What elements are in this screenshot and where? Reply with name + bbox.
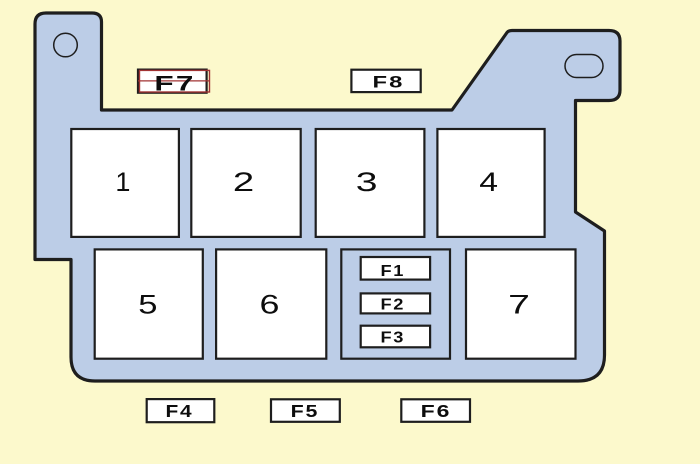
svg-text:F6: F6 <box>421 402 452 422</box>
svg-text:3: 3 <box>356 168 378 198</box>
svg-text:F8: F8 <box>373 73 405 92</box>
svg-text:2: 2 <box>233 167 254 197</box>
svg-text:F3: F3 <box>380 327 405 346</box>
svg-text:F4: F4 <box>165 402 193 422</box>
svg-text:F1: F1 <box>380 261 405 280</box>
svg-text:F2: F2 <box>380 294 405 313</box>
svg-text:7: 7 <box>508 290 530 320</box>
svg-text:F7: F7 <box>154 71 195 95</box>
svg-text:6: 6 <box>260 289 280 320</box>
svg-text:F5: F5 <box>291 402 320 422</box>
svg-text:1: 1 <box>115 167 130 197</box>
svg-text:5: 5 <box>138 289 157 319</box>
svg-text:4: 4 <box>479 167 498 197</box>
